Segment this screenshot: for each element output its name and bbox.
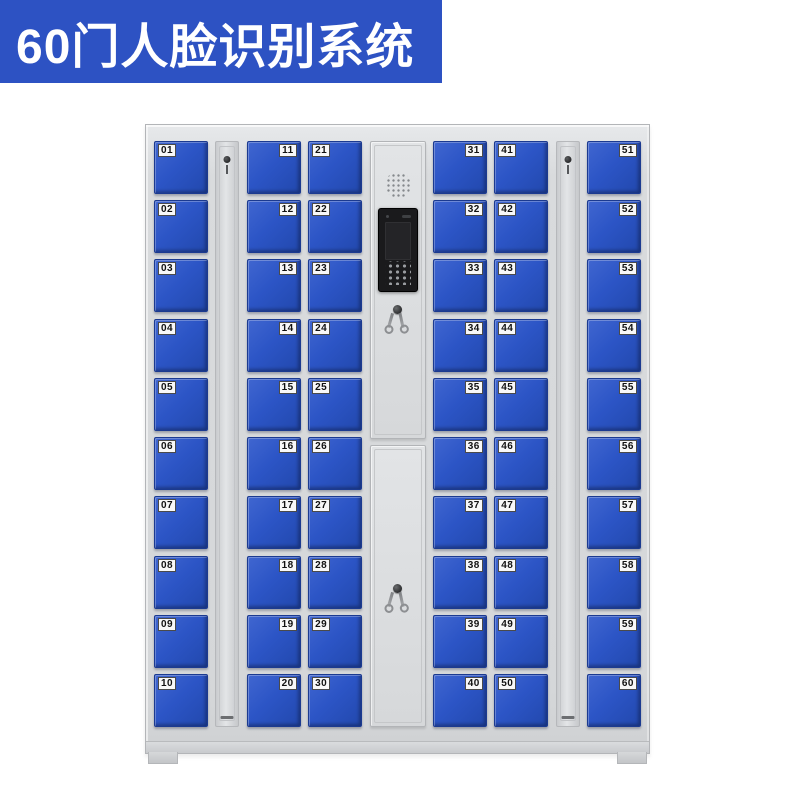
door-number-label: 20 xyxy=(279,677,297,690)
door-number-label: 09 xyxy=(158,618,176,631)
locker-door-28[interactable]: 28 xyxy=(308,556,362,609)
door-number-label: 46 xyxy=(498,440,516,453)
door-number-label: 49 xyxy=(498,618,516,631)
locker-door-40[interactable]: 40 xyxy=(433,674,487,727)
service-door[interactable] xyxy=(370,445,426,727)
door-number-label: 60 xyxy=(619,677,637,690)
locker-door-01[interactable]: 01 xyxy=(154,141,208,194)
door-number-label: 59 xyxy=(619,618,637,631)
locker-door-12[interactable]: 12 xyxy=(247,200,301,253)
door-number-label: 44 xyxy=(498,322,516,335)
locker-door-47[interactable]: 47 xyxy=(494,496,548,549)
kickplate xyxy=(146,741,649,753)
locker-door-29[interactable]: 29 xyxy=(308,615,362,668)
door-number-label: 29 xyxy=(312,618,330,631)
locker-door-23[interactable]: 23 xyxy=(308,259,362,312)
strip-handle[interactable] xyxy=(561,716,574,719)
door-number-label: 43 xyxy=(498,262,516,275)
keypad[interactable] xyxy=(385,261,411,285)
locker-door-30[interactable]: 30 xyxy=(308,674,362,727)
locker-door-07[interactable]: 07 xyxy=(154,496,208,549)
door-number-label: 28 xyxy=(312,559,330,572)
locker-door-04[interactable]: 04 xyxy=(154,319,208,372)
door-number-label: 55 xyxy=(619,381,637,394)
door-number-label: 52 xyxy=(619,203,637,216)
locker-door-06[interactable]: 06 xyxy=(154,437,208,490)
panel-key-lock[interactable] xyxy=(371,305,425,345)
locker-door-17[interactable]: 17 xyxy=(247,496,301,549)
locker-door-54[interactable]: 54 xyxy=(587,319,641,372)
locker-door-26[interactable]: 26 xyxy=(308,437,362,490)
control-panel-column xyxy=(370,141,426,727)
locker-door-21[interactable]: 21 xyxy=(308,141,362,194)
locker-door-09[interactable]: 09 xyxy=(154,615,208,668)
locker-door-51[interactable]: 51 xyxy=(587,141,641,194)
door-number-label: 14 xyxy=(279,322,297,335)
locker-door-22[interactable]: 22 xyxy=(308,200,362,253)
door-number-label: 18 xyxy=(279,559,297,572)
key-icon xyxy=(386,313,393,328)
locker-door-15[interactable]: 15 xyxy=(247,378,301,431)
locker-door-44[interactable]: 44 xyxy=(494,319,548,372)
locker-door-42[interactable]: 42 xyxy=(494,200,548,253)
door-number-label: 11 xyxy=(279,144,297,157)
cabinet-foot-right xyxy=(617,752,647,764)
locker-cabinet: 0102030405060708091011121314151617181920… xyxy=(145,124,650,754)
locker-door-33[interactable]: 33 xyxy=(433,259,487,312)
door-number-label: 12 xyxy=(279,203,297,216)
door-number-label: 56 xyxy=(619,440,637,453)
door-number-label: 04 xyxy=(158,322,176,335)
door-number-label: 32 xyxy=(465,203,483,216)
door-number-label: 45 xyxy=(498,381,516,394)
control-panel-door[interactable] xyxy=(370,141,426,439)
camera-icon xyxy=(386,215,389,218)
door-number-label: 34 xyxy=(465,322,483,335)
key-icon xyxy=(226,165,228,174)
door-number-label: 37 xyxy=(465,499,483,512)
locker-door-58[interactable]: 58 xyxy=(587,556,641,609)
locker-door-46[interactable]: 46 xyxy=(494,437,548,490)
door-number-label: 53 xyxy=(619,262,637,275)
door-column: 21222324252627282930 xyxy=(308,141,362,727)
door-number-label: 31 xyxy=(465,144,483,157)
door-number-label: 01 xyxy=(158,144,176,157)
door-number-label: 36 xyxy=(465,440,483,453)
locker-door-45[interactable]: 45 xyxy=(494,378,548,431)
door-number-label: 07 xyxy=(158,499,176,512)
locker-door-39[interactable]: 39 xyxy=(433,615,487,668)
door-number-label: 21 xyxy=(312,144,330,157)
key-icon xyxy=(386,592,393,607)
door-number-label: 06 xyxy=(158,440,176,453)
locker-door-27[interactable]: 27 xyxy=(308,496,362,549)
door-number-label: 15 xyxy=(279,381,297,394)
door-number-label: 02 xyxy=(158,203,176,216)
strip-handle[interactable] xyxy=(221,716,234,719)
locker-door-11[interactable]: 11 xyxy=(247,141,301,194)
locker-door-35[interactable]: 35 xyxy=(433,378,487,431)
door-column: 51525354555657585960 xyxy=(587,141,641,727)
door-number-label: 23 xyxy=(312,262,330,275)
locker-door-53[interactable]: 53 xyxy=(587,259,641,312)
door-number-label: 48 xyxy=(498,559,516,572)
door-number-label: 58 xyxy=(619,559,637,572)
door-number-label: 41 xyxy=(498,144,516,157)
door-number-label: 19 xyxy=(279,618,297,631)
door-number-label: 26 xyxy=(312,440,330,453)
door-number-label: 38 xyxy=(465,559,483,572)
door-number-label: 03 xyxy=(158,262,176,275)
door-number-label: 35 xyxy=(465,381,483,394)
master-lock-strip xyxy=(556,141,580,727)
door-number-label: 51 xyxy=(619,144,637,157)
locker-door-57[interactable]: 57 xyxy=(587,496,641,549)
speaker-slot-icon xyxy=(402,215,411,218)
key-icon xyxy=(567,165,569,174)
locker-door-49[interactable]: 49 xyxy=(494,615,548,668)
door-number-label: 10 xyxy=(158,677,176,690)
locker-door-37[interactable]: 37 xyxy=(433,496,487,549)
door-number-label: 33 xyxy=(465,262,483,275)
product-image-page: 60门人脸识别系统 010203040506070809101112131415… xyxy=(0,0,800,800)
door-number-label: 22 xyxy=(312,203,330,216)
key-icon xyxy=(398,592,404,607)
door-number-label: 17 xyxy=(279,499,297,512)
locker-door-59[interactable]: 59 xyxy=(587,615,641,668)
door-number-label: 24 xyxy=(312,322,330,335)
locker-door-38[interactable]: 38 xyxy=(433,556,487,609)
door-number-label: 16 xyxy=(279,440,297,453)
face-recognition-screen[interactable] xyxy=(378,208,418,292)
door-number-label: 30 xyxy=(312,677,330,690)
locker-door-25[interactable]: 25 xyxy=(308,378,362,431)
locker-door-18[interactable]: 18 xyxy=(247,556,301,609)
door-column: 11121314151617181920 xyxy=(247,141,301,727)
keyhole-icon[interactable] xyxy=(564,156,571,163)
door-number-label: 54 xyxy=(619,322,637,335)
door-number-label: 05 xyxy=(158,381,176,394)
screen-display xyxy=(385,222,411,260)
door-number-label: 27 xyxy=(312,499,330,512)
locker-door-20[interactable]: 20 xyxy=(247,674,301,727)
master-lock-strip xyxy=(215,141,239,727)
service-door-key-lock[interactable] xyxy=(371,584,425,624)
locker-door-34[interactable]: 34 xyxy=(433,319,487,372)
locker-door-13[interactable]: 13 xyxy=(247,259,301,312)
locker-door-16[interactable]: 16 xyxy=(247,437,301,490)
title-banner: 60门人脸识别系统 xyxy=(0,0,442,83)
locker-door-24[interactable]: 24 xyxy=(308,319,362,372)
door-number-label: 40 xyxy=(465,677,483,690)
cabinet-foot-left xyxy=(148,752,178,764)
locker-door-10[interactable]: 10 xyxy=(154,674,208,727)
locker-door-08[interactable]: 08 xyxy=(154,556,208,609)
locker-door-60[interactable]: 60 xyxy=(587,674,641,727)
locker-door-56[interactable]: 56 xyxy=(587,437,641,490)
locker-door-41[interactable]: 41 xyxy=(494,141,548,194)
door-number-label: 42 xyxy=(498,203,516,216)
door-number-label: 50 xyxy=(498,677,516,690)
locker-door-36[interactable]: 36 xyxy=(433,437,487,490)
door-number-label: 47 xyxy=(498,499,516,512)
locker-door-03[interactable]: 03 xyxy=(154,259,208,312)
locker-door-19[interactable]: 19 xyxy=(247,615,301,668)
locker-door-14[interactable]: 14 xyxy=(247,319,301,372)
locker-door-50[interactable]: 50 xyxy=(494,674,548,727)
locker-door-48[interactable]: 48 xyxy=(494,556,548,609)
locker-door-31[interactable]: 31 xyxy=(433,141,487,194)
door-number-label: 39 xyxy=(465,618,483,631)
door-number-label: 08 xyxy=(158,559,176,572)
door-number-label: 25 xyxy=(312,381,330,394)
locker-door-43[interactable]: 43 xyxy=(494,259,548,312)
locker-door-55[interactable]: 55 xyxy=(587,378,641,431)
locker-door-52[interactable]: 52 xyxy=(587,200,641,253)
key-icon xyxy=(398,313,404,328)
locker-door-32[interactable]: 32 xyxy=(433,200,487,253)
locker-columns: 0102030405060708091011121314151617181920… xyxy=(154,141,641,727)
speaker-grille-icon xyxy=(385,172,411,198)
door-column: 01020304050607080910 xyxy=(154,141,208,727)
door-column: 31323334353637383940 xyxy=(433,141,487,727)
door-number-label: 13 xyxy=(279,262,297,275)
locker-door-05[interactable]: 05 xyxy=(154,378,208,431)
door-number-label: 57 xyxy=(619,499,637,512)
door-column: 41424344454647484950 xyxy=(494,141,548,727)
keyhole-icon[interactable] xyxy=(224,156,231,163)
locker-door-02[interactable]: 02 xyxy=(154,200,208,253)
